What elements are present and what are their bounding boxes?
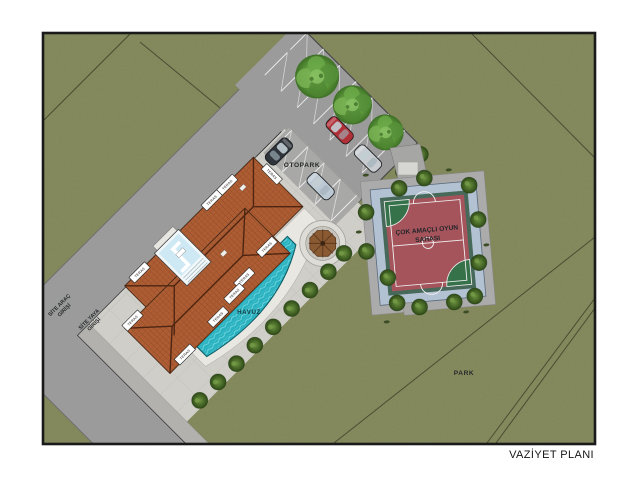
playground: ÇOK AMAÇLI OYUN SAHASI — [351, 163, 497, 325]
site-plan-drawing: TERAS TERAS TERAS TERAS TERAS TERAS TERA… — [0, 0, 641, 480]
plan-title: VAZİYET PLANI — [509, 448, 594, 461]
site-plan-page: TERAS TERAS TERAS TERAS TERAS TERAS TERA… — [0, 0, 641, 480]
havuz-label: HAVUZ — [237, 309, 261, 316]
otopark-label: OTOPARK — [284, 162, 321, 169]
park-label: PARK — [454, 370, 475, 377]
